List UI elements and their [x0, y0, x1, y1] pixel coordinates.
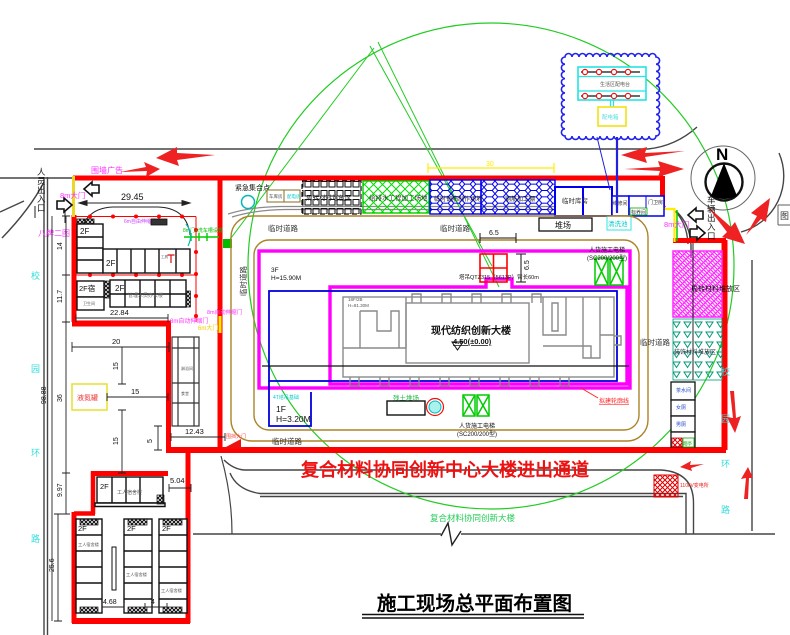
- svg-text:车库房: 车库房: [269, 193, 283, 200]
- svg-text:周转材料堆放区: 周转材料堆放区: [691, 284, 740, 293]
- svg-text:维修间: 维修间: [613, 200, 628, 207]
- svg-text:给排水工程加工场地: 给排水工程加工场地: [369, 193, 428, 202]
- svg-text:钢筋加工棚: 钢筋加工棚: [505, 195, 535, 203]
- svg-text:施工现场总平面布置图: 施工现场总平面布置图: [377, 592, 572, 615]
- svg-text:周转材料堆放区: 周转材料堆放区: [306, 193, 352, 202]
- svg-text:工具: 工具: [161, 254, 168, 259]
- svg-text:20: 20: [112, 337, 120, 346]
- svg-text:食堂: 食堂: [181, 390, 189, 396]
- svg-text:25.6: 25.6: [49, 558, 56, 572]
- svg-text:图: 图: [780, 211, 789, 221]
- svg-text:门卫房: 门卫房: [648, 199, 663, 206]
- svg-text:管理人员办公楼: 管理人员办公楼: [128, 292, 163, 299]
- svg-text:2F: 2F: [127, 524, 136, 533]
- svg-text:烟亭: 烟亭: [683, 440, 692, 447]
- svg-text:2F: 2F: [78, 524, 87, 533]
- svg-text:紧急集合点: 紧急集合点: [235, 183, 270, 192]
- svg-text:8m大门: 8m大门: [664, 219, 689, 229]
- svg-text:校: 校: [721, 366, 730, 377]
- svg-text:(SC200/200型): (SC200/200型): [587, 254, 627, 262]
- svg-text:拟建轮廓线: 拟建轮廓线: [599, 397, 629, 405]
- svg-text:14: 14: [57, 242, 64, 250]
- svg-text:液氮罐: 液氮罐: [77, 393, 98, 402]
- svg-text:淋浴间: 淋浴间: [181, 365, 193, 371]
- svg-text:复合材料协同创新中心大楼进出通道: 复合材料协同创新中心大楼进出通道: [300, 459, 589, 480]
- svg-text:H=81.30M: H=81.30M: [348, 303, 369, 308]
- svg-text:110kV变电所: 110kV变电所: [680, 482, 709, 489]
- svg-text:堆场: 堆场: [555, 220, 571, 230]
- svg-text:98.88: 98.88: [41, 386, 48, 404]
- svg-text:11.7: 11.7: [57, 290, 64, 303]
- svg-text:2F宿: 2F宿: [79, 283, 95, 293]
- svg-text:8m大门: 8m大门: [60, 190, 85, 200]
- svg-text:(SC200/200型): (SC200/200型): [457, 430, 497, 438]
- svg-text:6.5: 6.5: [489, 230, 499, 237]
- svg-text:15: 15: [113, 362, 120, 370]
- svg-text:复合材料协同创新大楼: 复合材料协同创新大楼: [430, 513, 516, 523]
- svg-text:临时道路: 临时道路: [268, 223, 298, 233]
- svg-text:18F/2B: 18F/2B: [348, 297, 363, 302]
- svg-text:5.04: 5.04: [170, 476, 185, 485]
- svg-text:2F: 2F: [162, 524, 171, 533]
- svg-text:环: 环: [31, 448, 40, 458]
- svg-text:2F: 2F: [100, 482, 109, 491]
- svg-text:29.45: 29.45: [121, 192, 144, 202]
- svg-text:临时道路: 临时道路: [640, 337, 670, 347]
- svg-text:清洗池: 清洗池: [608, 219, 628, 228]
- svg-text:6m大门: 6m大门: [198, 324, 218, 332]
- svg-text:4T塔吊基础: 4T塔吊基础: [273, 394, 299, 401]
- svg-text:2F: 2F: [80, 227, 89, 236]
- svg-text:男厕: 男厕: [676, 422, 686, 428]
- svg-text:H=15.90M: H=15.90M: [271, 275, 301, 282]
- svg-text:标养间: 标养间: [631, 209, 646, 216]
- svg-text:现代纺织创新大楼: 现代纺织创新大楼: [431, 324, 511, 337]
- svg-text:15: 15: [113, 437, 120, 445]
- svg-text:校: 校: [31, 270, 40, 281]
- svg-text:临时钢筋制作场地: 临时钢筋制作场地: [434, 195, 482, 203]
- svg-text:配电房: 配电房: [287, 193, 301, 200]
- svg-text:9.97: 9.97: [57, 483, 64, 497]
- svg-text:15: 15: [131, 387, 139, 396]
- svg-text:环: 环: [721, 459, 730, 469]
- svg-text:1F: 1F: [276, 404, 286, 414]
- svg-text:8m自动伸缩门: 8m自动伸缩门: [207, 308, 242, 316]
- svg-text:8m自动伸缩门: 8m自动伸缩门: [170, 317, 208, 325]
- svg-text:22.84: 22.84: [110, 308, 129, 317]
- svg-text:工人宿舍楼: 工人宿舍楼: [126, 571, 147, 578]
- svg-text:口: 口: [707, 231, 716, 241]
- svg-text:4: 4: [151, 599, 155, 606]
- svg-text:工人宿舍楼: 工人宿舍楼: [117, 489, 142, 496]
- svg-text:临时道路: 临时道路: [238, 266, 248, 296]
- svg-text:临时道路: 临时道路: [440, 223, 470, 233]
- svg-text:八牌二图: 八牌二图: [38, 228, 70, 238]
- svg-text:工人宿舍楼: 工人宿舍楼: [78, 541, 99, 548]
- svg-text:5: 5: [147, 439, 154, 443]
- svg-text:N: N: [716, 145, 728, 164]
- svg-text:3F: 3F: [271, 267, 279, 274]
- svg-text:人货施工电梯: 人货施工电梯: [459, 422, 495, 430]
- svg-text:6.5: 6.5: [524, 260, 531, 270]
- svg-text:配电箱: 配电箱: [602, 113, 619, 121]
- svg-text:30: 30: [486, 161, 494, 168]
- svg-text:装饰材料堆放区: 装饰材料堆放区: [674, 348, 716, 356]
- svg-text:口: 口: [37, 203, 46, 213]
- svg-text:12.43: 12.43: [185, 427, 204, 436]
- svg-text:塔吊QTZ315（5613P）臂长60m: 塔吊QTZ315（5613P）臂长60m: [459, 273, 539, 281]
- svg-text:女厕: 女厕: [676, 404, 686, 411]
- svg-text:围挡大门: 围挡大门: [226, 433, 246, 440]
- svg-text:36: 36: [57, 394, 64, 402]
- svg-text:临时道路: 临时道路: [272, 436, 302, 446]
- svg-text:卫生间: 卫生间: [83, 300, 95, 306]
- svg-text:4.68: 4.68: [103, 599, 117, 606]
- svg-text:生活区配电台: 生活区配电台: [600, 81, 630, 88]
- svg-text:园: 园: [31, 364, 40, 374]
- svg-text:围墙广告: 围墙广告: [91, 165, 123, 175]
- svg-text:工人宿舍楼: 工人宿舍楼: [161, 587, 182, 594]
- svg-text:临时库房: 临时库房: [562, 196, 588, 205]
- svg-text:2F: 2F: [115, 284, 124, 293]
- svg-text:2F: 2F: [106, 259, 115, 268]
- svg-text:路: 路: [31, 533, 40, 544]
- svg-text:人货施工电梯: 人货施工电梯: [589, 246, 625, 254]
- svg-text:茶水间: 茶水间: [676, 387, 691, 394]
- svg-text:路: 路: [721, 504, 730, 515]
- svg-text:H=3.20M: H=3.20M: [276, 414, 311, 424]
